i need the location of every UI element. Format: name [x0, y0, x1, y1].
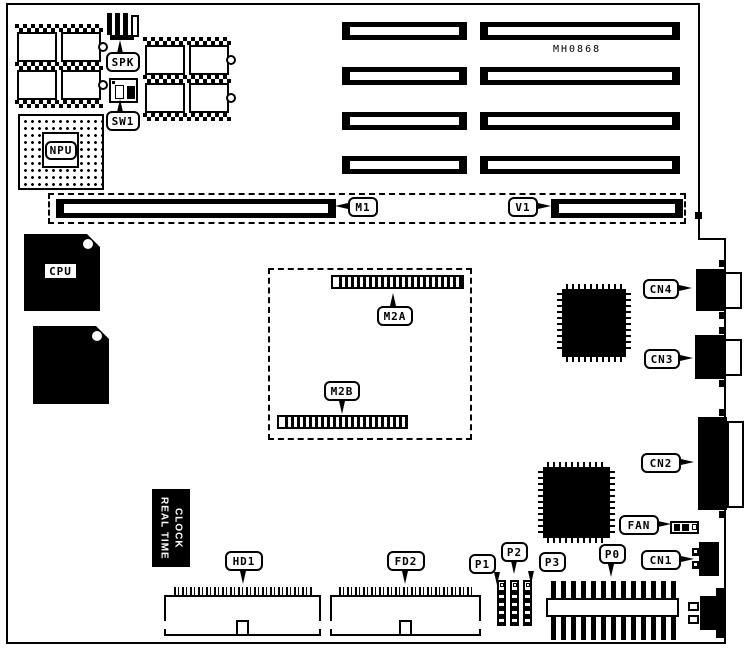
cpu-label: CPU — [49, 265, 72, 278]
motherboard-diagram: SPK SW1 NPU MH0868 M1 V1 CPU — [0, 0, 744, 651]
cn1-pin — [692, 548, 700, 556]
cpu-tag: CPU — [43, 262, 78, 280]
cn3-pointer — [680, 355, 693, 361]
m2a-pointer — [390, 293, 396, 306]
isa-slot-7 — [342, 156, 467, 174]
m1-callout: M1 — [348, 197, 378, 217]
npu-label: NPU — [50, 144, 73, 157]
sw1-callout: SW1 — [106, 111, 140, 131]
m1-pointer — [335, 203, 348, 209]
fd2-callout: FD2 — [387, 551, 425, 571]
jumper-p2 — [510, 580, 519, 626]
fan-header — [670, 521, 699, 534]
keyboard-port-step — [716, 588, 725, 596]
fd2-label: FD2 — [395, 555, 418, 568]
pin1-dot — [83, 239, 93, 249]
pin-row — [143, 37, 231, 45]
speaker-pin — [123, 13, 128, 35]
pin-row — [15, 24, 103, 32]
p1-callout: P1 — [469, 554, 496, 574]
m2a-label: M2A — [384, 310, 407, 323]
isa-slot-2 — [480, 22, 680, 40]
cn2-callout: CN2 — [641, 453, 681, 473]
spk-label: SPK — [112, 56, 135, 69]
isa-slot-1 — [342, 22, 467, 40]
hd1-callout: HD1 — [225, 551, 263, 571]
edge-screw — [719, 327, 726, 334]
qfp-pins — [610, 471, 615, 534]
v1-callout: V1 — [508, 197, 538, 217]
edge-screw — [719, 409, 726, 416]
jumper-p3 — [523, 580, 532, 626]
p1-label: P1 — [475, 558, 490, 571]
isa-slot-5 — [342, 112, 467, 130]
pin-row — [143, 75, 231, 83]
dram-chip — [189, 83, 229, 113]
cn3-label: CN3 — [651, 353, 674, 366]
m2b-callout: M2B — [324, 381, 360, 401]
m2a-callout: M2A — [377, 306, 413, 326]
isa-slot-6 — [480, 112, 680, 130]
cn1-label: CN1 — [650, 554, 673, 567]
dip-notch — [226, 55, 236, 65]
pin-row — [143, 113, 231, 121]
qfp-pins — [566, 357, 622, 362]
p3-label: P3 — [545, 556, 560, 569]
fan-pointer — [658, 521, 671, 527]
cn3-callout: CN3 — [644, 349, 680, 369]
speaker-pin — [115, 13, 120, 35]
spk-callout: SPK — [106, 52, 140, 72]
hd1-side-notch — [318, 621, 322, 629]
fan-pin-outline — [692, 524, 697, 530]
pin-row — [15, 62, 103, 70]
m2b-pointer — [339, 401, 345, 414]
cn1-pointer — [681, 556, 694, 562]
board-edge-right-upper — [698, 3, 700, 240]
fan-callout: FAN — [619, 515, 659, 535]
hd1-key-notch — [236, 620, 249, 634]
dram-chip — [145, 45, 185, 75]
edge-screw — [695, 212, 702, 219]
dram-chip — [61, 70, 101, 100]
rtc-line1: REAL TIME — [159, 497, 170, 560]
cn1-callout: CN1 — [641, 550, 681, 570]
dip-notch — [98, 42, 108, 52]
port-cn4 — [696, 269, 724, 311]
pin1-marker — [112, 81, 115, 84]
sw1-label: SW1 — [112, 115, 135, 128]
cn1-pin — [692, 561, 700, 569]
cn4-label: CN4 — [650, 283, 673, 296]
port-cn1 — [699, 542, 719, 576]
jumper-p1 — [497, 580, 506, 626]
v1-pointer — [538, 203, 551, 209]
p3-pointer — [528, 571, 534, 584]
pin-row — [15, 100, 103, 108]
edge-screw — [719, 312, 726, 319]
dram-chip — [61, 32, 101, 62]
fd2-side-notch — [478, 621, 482, 629]
p0-callout: P0 — [599, 544, 626, 564]
p0-pointer — [608, 564, 614, 577]
qfp-chip-2 — [543, 467, 610, 538]
port-cn2 — [698, 417, 727, 510]
rtc-chip: REAL TIME CLOCK — [152, 489, 190, 567]
p2-label: P2 — [507, 546, 522, 559]
qfp-chip-1 — [562, 289, 626, 357]
cn2-pointer — [681, 459, 694, 465]
board-edge-top — [6, 3, 700, 5]
p2-pointer — [511, 561, 517, 574]
edge-screw — [719, 260, 726, 267]
isa-slot-8 — [480, 156, 680, 174]
speaker-header — [107, 13, 141, 40]
hd1-side-notch — [163, 621, 167, 629]
board-edge-left — [6, 3, 8, 644]
m2b-label: M2B — [331, 385, 354, 398]
qfp-pins — [566, 284, 622, 289]
board-edge-step — [698, 238, 726, 240]
port-cn3-shell — [724, 339, 742, 376]
dram-chip — [17, 32, 57, 62]
p0-label: P0 — [605, 548, 620, 561]
video-slot-v1 — [551, 199, 683, 218]
fan-pin — [674, 524, 680, 531]
keyboard-port-tab — [688, 615, 699, 624]
memory-header-m2b — [277, 415, 408, 429]
dram-chip — [189, 45, 229, 75]
v1-label: V1 — [515, 201, 530, 214]
m1-label: M1 — [355, 201, 370, 214]
keyboard-port — [700, 596, 724, 630]
memory-slot-m1 — [56, 199, 336, 218]
fd2-key-notch — [399, 620, 412, 634]
qfp-pins — [626, 293, 631, 353]
fan-pin — [682, 524, 689, 531]
dram-bank-2 — [143, 37, 231, 121]
edge-screw — [719, 511, 726, 518]
fd2-side-notch — [329, 621, 333, 629]
isa-slot-3 — [342, 67, 467, 85]
edge-screw — [719, 380, 726, 387]
p3-callout: P3 — [539, 552, 566, 572]
port-cn2-shell — [727, 421, 744, 508]
fd2-pointer — [402, 571, 408, 584]
dip-notch — [226, 93, 236, 103]
speaker-pin-outline — [131, 15, 139, 37]
dram-chip — [17, 70, 57, 100]
hd1-pointer — [240, 571, 246, 584]
memory-header-m2a — [331, 275, 464, 289]
speaker-pin — [107, 13, 112, 35]
keyboard-port-tab — [688, 602, 699, 611]
part-number: MH0868 — [553, 44, 601, 55]
pin1-dot — [92, 331, 102, 341]
qfp-pins — [547, 462, 606, 467]
dram-bank-1 — [15, 24, 103, 108]
port-cn4-shell — [724, 272, 742, 309]
qfp-pins — [547, 538, 606, 543]
support-chip — [33, 326, 109, 404]
qfp-pins — [538, 471, 543, 534]
p2-callout: P2 — [501, 542, 528, 562]
rtc-line2: CLOCK — [173, 508, 184, 549]
power-connector-p0-bar — [546, 598, 679, 617]
keyboard-port-step — [716, 630, 725, 638]
dram-chip — [145, 83, 185, 113]
switch-slider — [115, 85, 124, 99]
isa-slot-4 — [480, 67, 680, 85]
cn2-label: CN2 — [650, 457, 673, 470]
dip-notch — [98, 80, 108, 90]
port-cn3 — [695, 335, 724, 379]
dip-switch-sw1 — [109, 78, 138, 103]
p1-pointer — [494, 572, 500, 585]
cn4-pointer — [679, 285, 692, 291]
fan-label: FAN — [628, 519, 651, 532]
hd1-label: HD1 — [233, 555, 256, 568]
qfp-pins — [557, 293, 562, 353]
board-edge-bottom — [6, 642, 726, 644]
npu-callout: NPU — [45, 141, 77, 160]
switch-block — [127, 86, 135, 99]
cn4-callout: CN4 — [643, 279, 679, 299]
